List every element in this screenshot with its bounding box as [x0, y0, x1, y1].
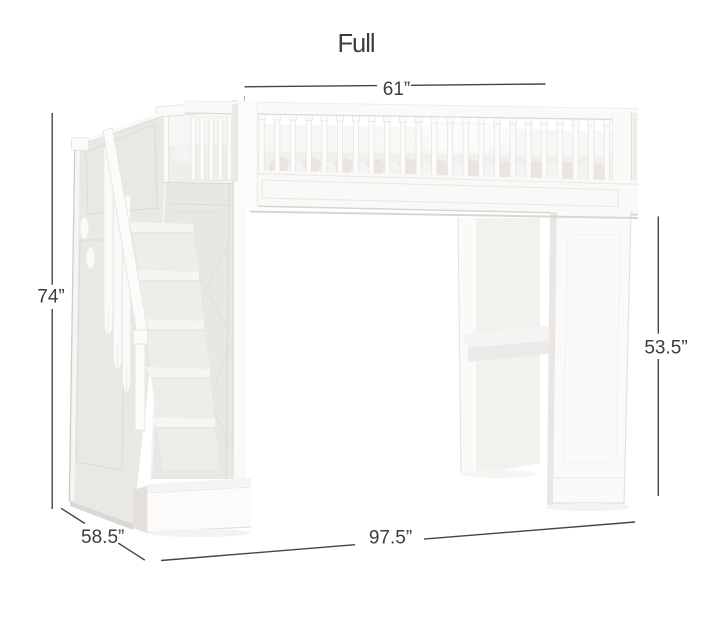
svg-text:61”: 61” — [383, 79, 410, 100]
svg-text:74”: 74” — [37, 287, 64, 308]
svg-text:97.5”: 97.5” — [369, 528, 412, 549]
svg-text:Full: Full — [337, 30, 374, 58]
svg-text:58.5”: 58.5” — [81, 527, 124, 548]
svg-text:53.5”: 53.5” — [644, 338, 687, 359]
